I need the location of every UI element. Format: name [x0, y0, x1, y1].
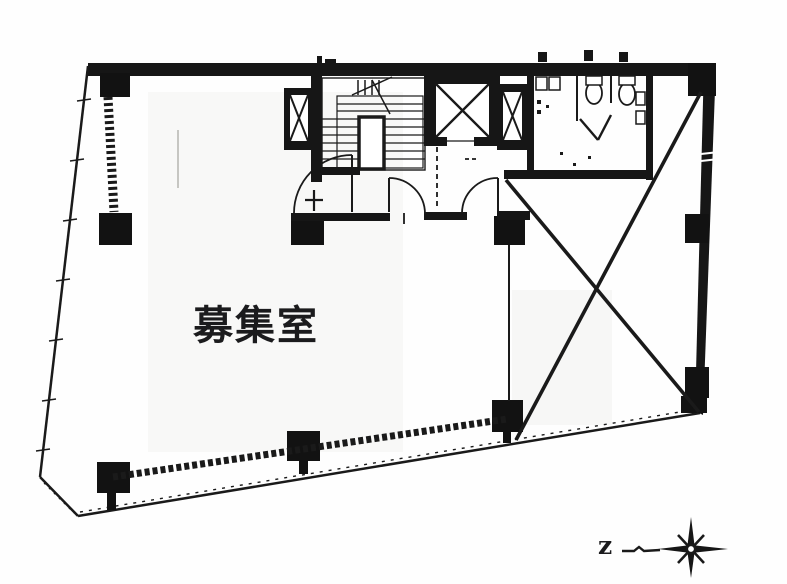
column-stub: [503, 432, 511, 443]
column: [494, 216, 525, 245]
hatched-wall-left: [108, 97, 114, 212]
sink-icon: [536, 77, 547, 90]
north-compass: [622, 517, 728, 578]
sink-icon: [549, 77, 560, 90]
shaft-right: [497, 84, 528, 150]
column: [688, 63, 716, 96]
column: [492, 400, 523, 432]
door-swing: [462, 178, 498, 213]
compass-north-letter: z: [598, 531, 612, 560]
urinal-icon: [636, 111, 645, 124]
column: [99, 213, 132, 245]
room-label: 募集室: [193, 293, 319, 351]
elevator: [424, 75, 500, 146]
tile-dots: [537, 100, 591, 166]
floor-plan-drawing: [0, 0, 787, 584]
toilet-icon: [619, 83, 635, 105]
column: [685, 367, 709, 398]
stair-landing: [359, 117, 384, 169]
column-stub: [107, 493, 116, 510]
column: [100, 73, 130, 97]
column-stub: [299, 461, 308, 474]
shaft-left: [284, 88, 313, 150]
exterior-top-wall: [88, 50, 716, 76]
compass-star-icon: [658, 517, 728, 578]
corridor-wall: [497, 211, 530, 220]
corridor-wall: [291, 213, 390, 221]
column: [685, 214, 709, 243]
urinal-icon: [636, 92, 645, 105]
floor-plan-page: 募集室 z: [0, 0, 787, 584]
exterior-left-wall: [36, 66, 91, 477]
corridor-wall: [424, 212, 467, 220]
